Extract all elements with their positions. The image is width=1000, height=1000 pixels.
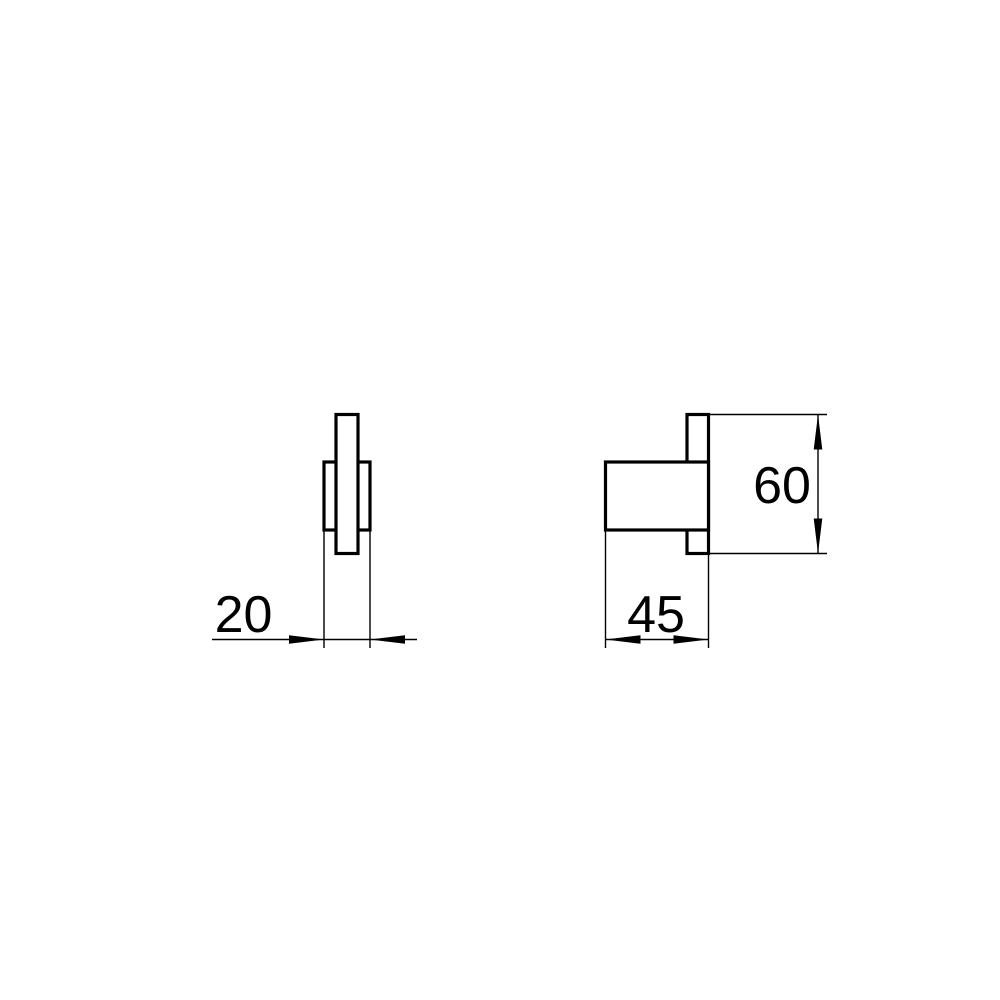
dim-60-label: 60 <box>753 457 811 515</box>
arrowhead-left-icon <box>370 635 405 644</box>
drawing-canvas: 20 45 60 <box>0 0 1000 1000</box>
dim-45-label: 45 <box>627 586 685 644</box>
dimension-side-height: 60 <box>709 415 827 554</box>
front-view <box>324 415 370 554</box>
dimension-front-width: 20 <box>212 532 417 649</box>
arrowhead-right-icon <box>289 635 324 644</box>
side-view <box>606 415 709 554</box>
arrowhead-up-icon <box>814 415 823 450</box>
dim-20-label: 20 <box>215 586 273 644</box>
arrowhead-down-icon <box>814 519 823 554</box>
side-view-body-rect <box>606 462 709 530</box>
front-view-plate-rect <box>336 415 358 554</box>
drawing-sheet: 20 45 60 <box>0 0 1000 1000</box>
